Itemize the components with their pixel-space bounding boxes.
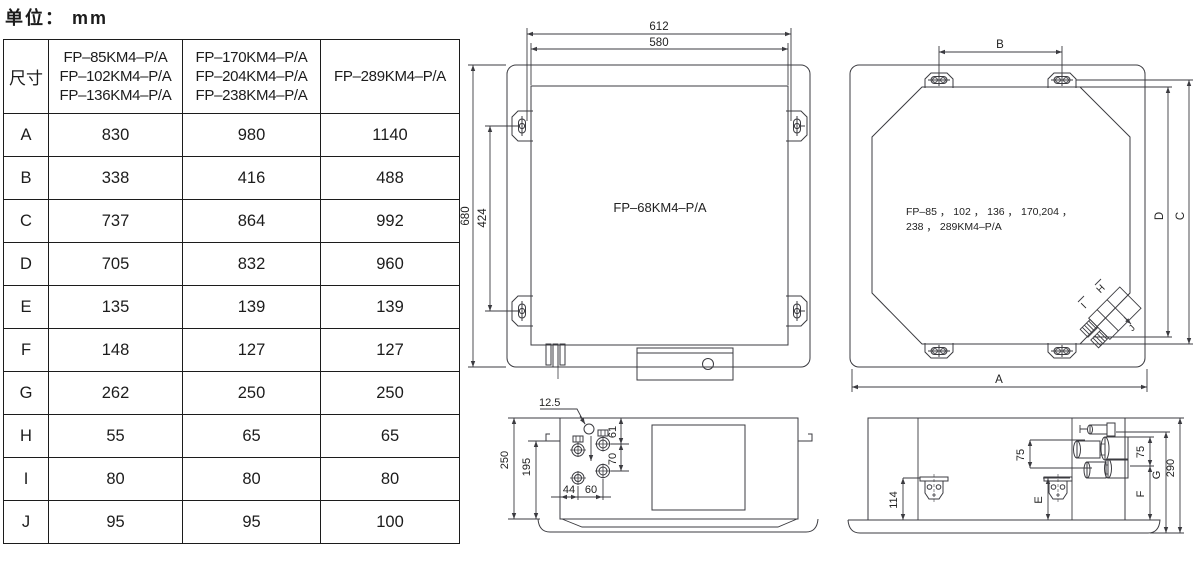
dim-C: C	[1076, 80, 1193, 344]
ceiling-panel-profile	[538, 519, 818, 532]
model-label-small: FP–68KM4–P/A	[613, 200, 707, 215]
model-label-large-line2: 238 ， 289KM4–P/A	[906, 221, 1002, 233]
dim-label-g: G	[1151, 471, 1163, 480]
dimension-table: 尺寸 FP–85KM4–P/A FP–102KM4–P/A FP–136KM4–…	[3, 39, 460, 544]
drain-connection	[584, 424, 594, 461]
table-cell: 80	[49, 458, 183, 501]
mounting-bracket	[786, 111, 807, 141]
ceiling-panel-inner-line	[562, 519, 797, 527]
body-section-lines	[918, 418, 1072, 520]
table-cell: 127	[321, 329, 460, 372]
drain-pipes	[546, 344, 565, 379]
table-cell: 338	[49, 157, 183, 200]
table-row: D705832960	[4, 243, 460, 286]
table-cell: 139	[183, 286, 321, 329]
row-label: C	[4, 200, 49, 243]
table-cell: 148	[49, 329, 183, 372]
table-corner-header: 尺寸	[4, 40, 49, 114]
unit-body-outline	[868, 418, 1125, 520]
row-label: F	[4, 329, 49, 372]
dim-label-c: C	[1175, 212, 1187, 220]
pipe-fittings	[1074, 423, 1129, 478]
model-name: FP–204KM4–P/A	[183, 67, 320, 86]
ceiling-panel-outline	[507, 65, 810, 367]
table-row: B338416488	[4, 157, 460, 200]
dim-label-612: 612	[649, 21, 668, 33]
dim-612: 612	[527, 21, 791, 121]
electrical-box	[652, 425, 745, 510]
dim-label-a: A	[995, 374, 1003, 386]
model-name: FP–170KM4–P/A	[183, 48, 320, 67]
unit-label: 单位： mm	[5, 4, 108, 30]
dim-label-i: I	[1079, 301, 1089, 311]
dim-D: D	[1080, 87, 1172, 337]
row-label: E	[4, 286, 49, 329]
row-label: G	[4, 372, 49, 415]
dim-label-60: 60	[585, 484, 597, 496]
table-cell: 80	[321, 458, 460, 501]
table-cell: 980	[183, 114, 321, 157]
dim-label-j: J	[1127, 323, 1137, 333]
electrical-box	[637, 348, 733, 380]
dim-75-right: 75	[1128, 437, 1154, 466]
model-name: FP–289KM4–P/A	[321, 67, 459, 86]
table-cell: 1140	[321, 114, 460, 157]
mounting-bracket	[512, 296, 533, 326]
dim-label-250: 250	[499, 451, 511, 469]
dim-424: 424	[477, 126, 514, 311]
dim-label-12-5: 12.5	[539, 397, 560, 409]
row-label: H	[4, 415, 49, 458]
table-column-header: FP–289KM4–P/A	[321, 40, 460, 114]
row-label: A	[4, 114, 49, 157]
model-label-large-line1: FP–85 ， 102 ， 136 ， 170,204 ，	[906, 206, 1072, 218]
table-row: H556565	[4, 415, 460, 458]
row-label: B	[4, 157, 49, 200]
dim-12-5: 12.5	[539, 397, 585, 424]
dim-label-680: 680	[460, 206, 472, 225]
table-cell: 488	[321, 157, 460, 200]
dim-label-195: 195	[521, 458, 533, 476]
dim-label-75-right: 75	[1135, 446, 1147, 458]
table-cell: 100	[321, 501, 460, 544]
catalog-dimension-page: { "unit_label": "单位： mm", "table": { "co…	[0, 0, 1200, 568]
row-label: I	[4, 458, 49, 501]
dim-114: 114	[888, 478, 903, 520]
table-cell: 95	[49, 501, 183, 544]
table-row: G262250250	[4, 372, 460, 415]
side-view-small-drawing: 12.5 250 195 61 70 44 6	[499, 397, 818, 532]
dim-580: 580	[531, 37, 788, 85]
mounting-bracket	[1048, 343, 1076, 358]
table-cell: 960	[321, 243, 460, 286]
model-name: FP–102KM4–P/A	[49, 67, 182, 86]
table-row: F148127127	[4, 329, 460, 372]
model-name: FP–238KM4–P/A	[183, 86, 320, 105]
mounting-bracket	[512, 111, 533, 141]
dim-label-b: B	[996, 39, 1004, 51]
dim-E: E	[1033, 478, 1070, 520]
dim-label-h: H	[1095, 283, 1108, 296]
dim-label-580: 580	[649, 37, 668, 49]
table-cell: 737	[49, 200, 183, 243]
hanger-hook	[798, 434, 812, 441]
table-row: C737864992	[4, 200, 460, 243]
table-row: J9595100	[4, 501, 460, 544]
table-cell: 830	[49, 114, 183, 157]
table-row: I808080	[4, 458, 460, 501]
dim-70: 70	[607, 444, 629, 471]
dim-label-44: 44	[563, 484, 575, 496]
unit-body-outline	[560, 418, 798, 519]
table-cell: 864	[183, 200, 321, 243]
dim-label-70: 70	[607, 453, 619, 465]
dim-B: B	[939, 39, 1062, 77]
table-cell: 135	[49, 286, 183, 329]
table-cell: 250	[321, 372, 460, 415]
table-row: A8309801140	[4, 114, 460, 157]
model-name: FP–136KM4–P/A	[49, 86, 182, 105]
side-view-large-drawing: 114 E 75 75 F G 290	[848, 418, 1184, 533]
table-cell: 250	[183, 372, 321, 415]
dim-label-d: D	[1154, 212, 1166, 220]
unit-body-outline	[531, 86, 788, 345]
hanger-bracket	[920, 474, 948, 503]
technical-drawings: 612 580 680 424 FP–68KM4–P/A	[455, 0, 1200, 568]
top-view-large-drawing: H I J B A D C FP–85 ， 102 ， 136 ， 170,20…	[850, 39, 1193, 392]
model-name: FP–85KM4–P/A	[49, 48, 182, 67]
mounting-bracket	[786, 296, 807, 326]
table-cell: 992	[321, 200, 460, 243]
table-cell: 65	[321, 415, 460, 458]
table-cell: 139	[321, 286, 460, 329]
row-label: D	[4, 243, 49, 286]
table-cell: 127	[183, 329, 321, 372]
dim-label-75-left: 75	[1015, 449, 1027, 461]
dim-A: A	[852, 369, 1147, 392]
dim-61: 61	[607, 418, 629, 444]
pipe-connections	[570, 430, 611, 485]
table-cell: 95	[183, 501, 321, 544]
dim-label-61: 61	[607, 426, 619, 438]
row-label: J	[4, 501, 49, 544]
dim-label-f: F	[1135, 490, 1147, 497]
mounting-bracket	[925, 343, 953, 358]
table-cell: 65	[183, 415, 321, 458]
dim-label-424: 424	[477, 208, 489, 228]
table-row: E135139139	[4, 286, 460, 329]
top-view-small-drawing: 612 580 680 424 FP–68KM4–P/A	[460, 21, 810, 380]
table-cell: 55	[49, 415, 183, 458]
table-cell: 705	[49, 243, 183, 286]
dim-label-114: 114	[888, 491, 900, 509]
dim-195: 195	[521, 441, 548, 519]
table-cell: 262	[49, 372, 183, 415]
dim-label-290: 290	[1165, 459, 1177, 477]
table-cell: 416	[183, 157, 321, 200]
dim-F: F	[1125, 466, 1154, 520]
dim-label-e: E	[1033, 496, 1045, 503]
ceiling-panel-profile	[848, 520, 1160, 533]
table-column-header: FP–85KM4–P/A FP–102KM4–P/A FP–136KM4–P/A	[49, 40, 183, 114]
table-cell: 832	[183, 243, 321, 286]
table-cell: 80	[183, 458, 321, 501]
table-column-header: FP–170KM4–P/A FP–204KM4–P/A FP–238KM4–P/…	[183, 40, 321, 114]
hanger-hook	[546, 434, 560, 441]
